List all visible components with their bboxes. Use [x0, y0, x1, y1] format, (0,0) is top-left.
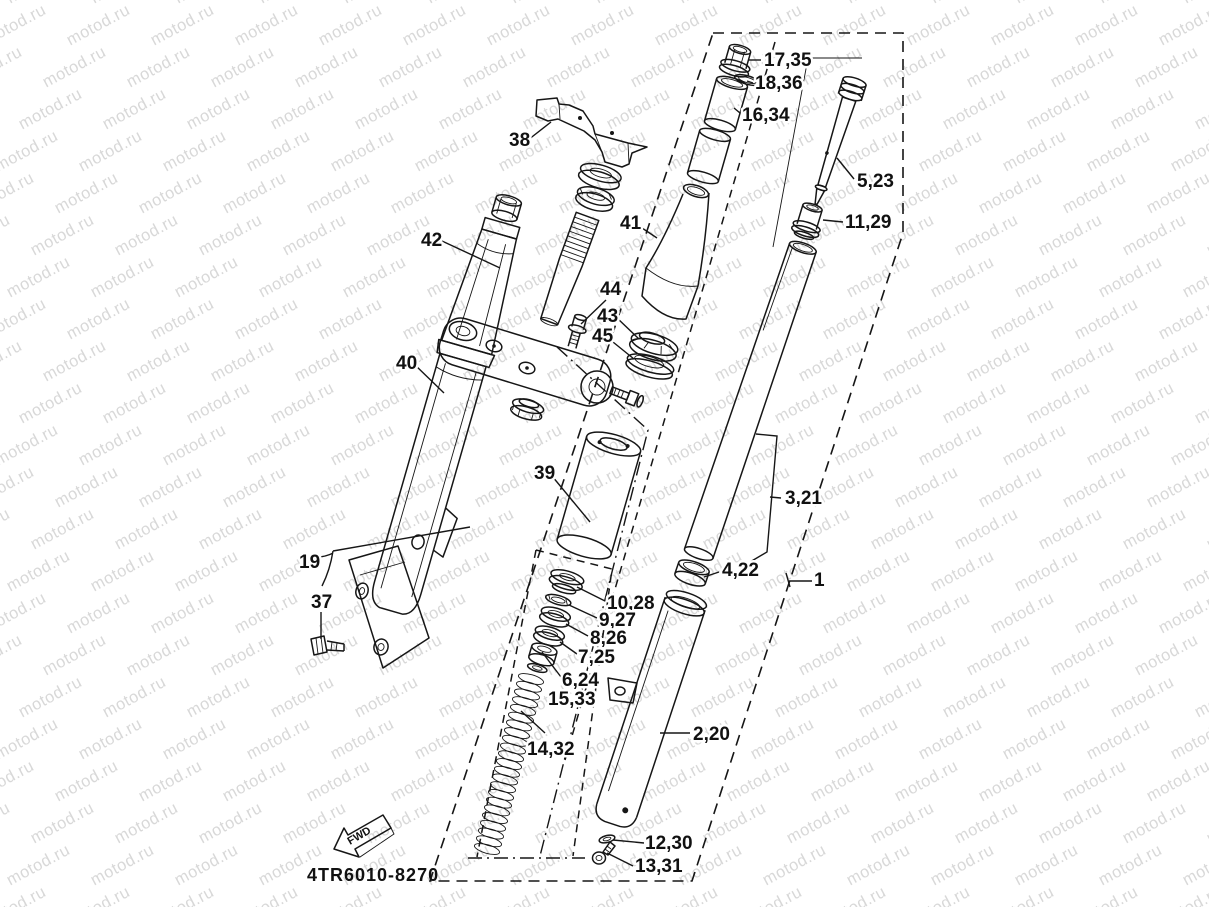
callout-43: 43	[597, 306, 618, 327]
callout-layer: 3842404144434539193717,3518,3616,345,231…	[299, 50, 894, 877]
spring-coil	[505, 718, 532, 733]
drain-screw	[593, 842, 616, 864]
callout-11-29: 11,29	[845, 212, 892, 233]
fork-spring	[473, 671, 544, 856]
spring-coil	[491, 772, 518, 787]
callout-16-34: 16,34	[742, 105, 790, 126]
callout-12-30: 12,30	[645, 833, 693, 854]
callout-45: 45	[592, 326, 614, 347]
spring-coil	[487, 787, 514, 802]
callout-6-24: 6,24	[562, 670, 599, 691]
leader-line	[528, 122, 551, 140]
spring-coil	[489, 779, 516, 794]
callout-37: 37	[311, 592, 332, 613]
steering-stem	[537, 212, 599, 328]
oil-lock-piece	[790, 200, 827, 242]
parts-diagram-page: motod.rumotod.rumotod.rumotod.rumotod.ru…	[0, 0, 1209, 907]
leader-lines	[320, 60, 854, 866]
steering-stem-nut	[509, 395, 545, 423]
spring-coil	[497, 749, 524, 764]
callout-13-31: 13,31	[635, 856, 683, 877]
leader-line	[566, 624, 588, 636]
steering-crown-bracket	[536, 98, 647, 167]
leader-line	[577, 587, 605, 601]
leader-line	[616, 317, 639, 339]
callout-42: 42	[421, 230, 442, 251]
callout-4-22: 4,22	[722, 560, 759, 581]
callout-18-36: 18,36	[755, 73, 803, 94]
spring-coil	[483, 803, 510, 818]
drain-washer	[598, 834, 615, 845]
callout-15-33: 15,33	[548, 689, 596, 710]
dust-seal-ring	[673, 557, 711, 589]
callout-14-32: 14,32	[527, 739, 575, 760]
callout-44: 44	[600, 279, 622, 300]
oil-seal-stack	[527, 567, 586, 674]
spring-coil	[511, 694, 538, 709]
spacer-tube-lower	[686, 126, 732, 187]
callout-40: 40	[396, 353, 417, 374]
leader-line	[569, 605, 597, 618]
fwd-label: FWD	[346, 825, 374, 848]
callout-41: 41	[620, 213, 642, 234]
fork-leg-assembly	[311, 188, 547, 668]
fork-exploded-diagram: FWD 4TR6010-8270 3842404144434539193717,…	[0, 0, 1209, 907]
callout-19: 19	[299, 552, 320, 573]
leader-line	[837, 158, 854, 179]
spring-coil	[479, 818, 506, 833]
callout-3-21: 3,21	[785, 488, 822, 509]
callout-38: 38	[509, 130, 530, 151]
spring-coil	[493, 764, 520, 779]
spring-coil	[513, 687, 540, 702]
callout-8-26: 8,26	[590, 628, 627, 649]
assembly-boundary-box	[430, 33, 903, 881]
leader-line	[320, 527, 470, 586]
callout-39: 39	[534, 463, 555, 484]
spring-coil	[495, 756, 522, 771]
pinch-bolt	[311, 636, 344, 655]
fwd-arrow: FWD	[334, 815, 394, 857]
spring-coil	[485, 795, 512, 810]
spring-coil	[475, 834, 502, 849]
spring-coil	[517, 671, 544, 686]
leader-line	[734, 108, 740, 113]
spring-coil	[499, 741, 526, 756]
drawing-number: 4TR6010-8270	[307, 865, 439, 885]
leader-line	[823, 220, 843, 222]
leader-line	[750, 434, 781, 562]
callout-2-20: 2,20	[693, 724, 730, 745]
callout-5-23: 5,23	[857, 171, 894, 192]
bearing-cover-washers	[574, 160, 624, 215]
spring-coil	[477, 826, 504, 841]
spring-coil	[481, 810, 508, 825]
leader-line	[613, 840, 644, 843]
bolt-44	[563, 313, 590, 350]
spring-coil	[509, 702, 536, 717]
leader-line	[521, 711, 545, 733]
leader-line	[607, 853, 633, 866]
spring-coil	[515, 679, 542, 694]
leader-line	[560, 642, 577, 654]
spring-coil	[507, 710, 534, 725]
callout-17-35: 17,35	[764, 50, 812, 71]
callout-7-25: 7,25	[578, 647, 615, 668]
spring-coil	[501, 733, 528, 748]
callout-1: 1	[814, 570, 825, 591]
leader-line	[442, 241, 500, 268]
leader-line	[786, 573, 812, 587]
